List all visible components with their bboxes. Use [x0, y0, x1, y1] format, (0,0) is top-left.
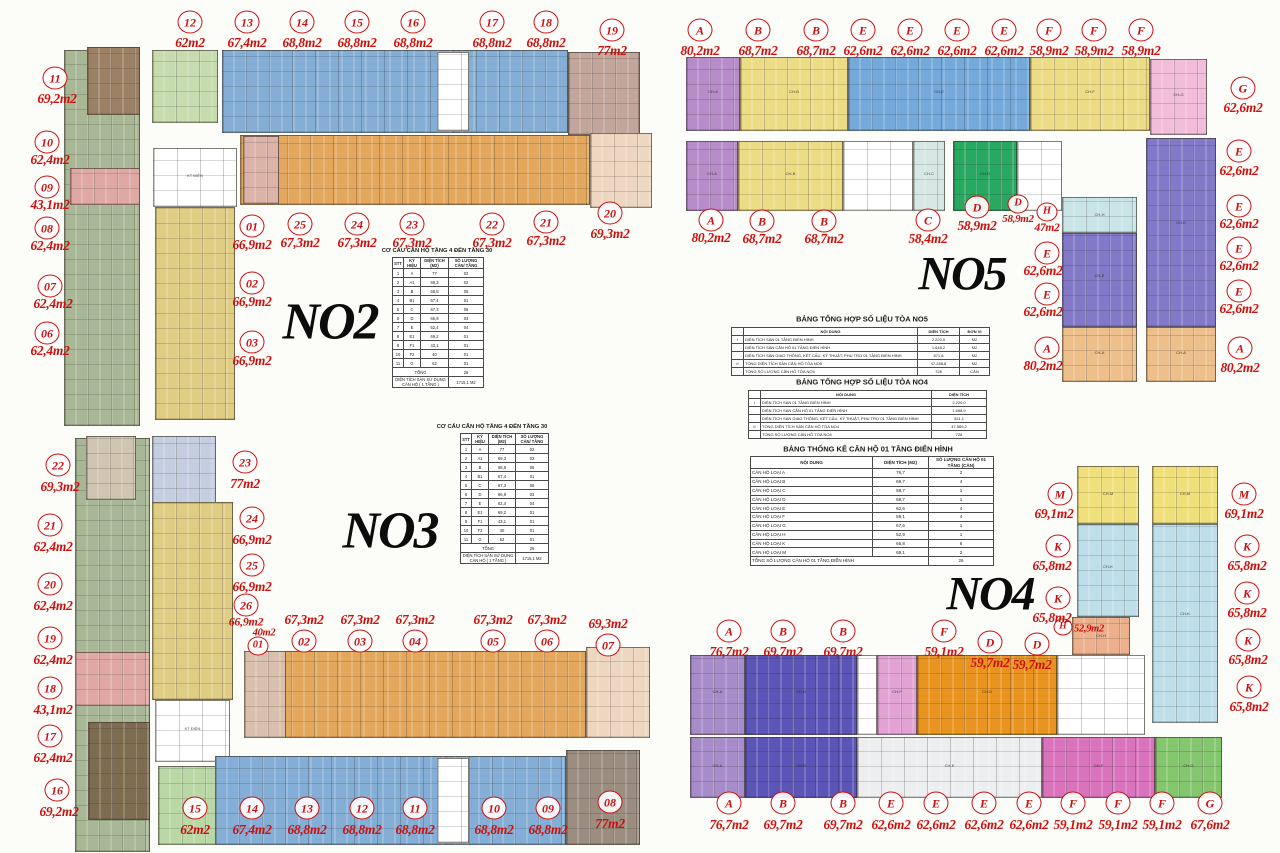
unit-type-tag: CH-K — [1078, 565, 1138, 569]
table-cell: 5 — [461, 481, 472, 490]
unit-area-label: 62,6m2 — [1023, 263, 1062, 279]
table-cell: 02 — [516, 445, 549, 454]
table-cell: 01 — [449, 341, 484, 350]
table-cell: CĂN HỘ LOẠI B — [751, 478, 873, 487]
table-cell: TỔNG SỐ LƯỢNG CĂN HỘ TÒA NO5 — [744, 368, 918, 376]
table-cell: 69,1 — [873, 548, 929, 557]
unit-circle-label: F — [1061, 792, 1086, 815]
table-cell: E — [404, 323, 421, 332]
unit-circle-label: 19 — [38, 627, 63, 650]
table-row: 9F143,101 — [393, 341, 484, 350]
table-cell: SỐ LƯỢNG CĂN HỘ 01 TẦNG (CĂN) — [929, 457, 994, 469]
table-cell: 01 — [516, 526, 549, 535]
plan-block: CH-E — [857, 737, 1042, 798]
table-cell: 02 — [516, 454, 549, 463]
unit-area-label: 62,6m2 — [1023, 304, 1062, 320]
table-cell: M2 — [960, 344, 990, 352]
unit-circle-label: M — [1048, 483, 1073, 506]
table-cell: 01 — [516, 472, 549, 481]
table-cell: 2.220,0 — [918, 336, 960, 344]
unit-area-label: 69,7m2 — [763, 644, 802, 660]
table-cell: 7 — [393, 323, 404, 332]
unit-area-label: 77m2 — [595, 816, 625, 832]
table-cell: 47.569,2 — [932, 423, 987, 431]
table-row: CĂN HỘ LOẠI D59,71 — [751, 495, 994, 504]
table-row: 1A7702 — [461, 445, 549, 454]
table-row: 7E62,404 — [393, 323, 484, 332]
unit-area-label: 68,7m2 — [804, 231, 843, 247]
table-row: 5C67,305 — [461, 481, 549, 490]
unit-circle-label: B — [812, 210, 837, 233]
table-row: 11G6201 — [461, 535, 549, 544]
unit-circle-label: 10 — [482, 797, 507, 820]
table-cell: D — [404, 314, 421, 323]
unit-area-label: 67,3m2 — [337, 235, 376, 251]
table-title-no5-summary: BẢNG TỔNG HỢP SỐ LIỆU TÒA NO5 — [796, 315, 928, 324]
unit-area-label: 69,7m2 — [823, 644, 862, 660]
unit-circle-label: B — [771, 620, 796, 643]
building-title-no2: NO2 — [282, 293, 377, 352]
unit-area-label: 62,6m2 — [984, 43, 1023, 59]
table-cell: E1 — [404, 332, 421, 341]
unit-circle-label: F — [1150, 792, 1175, 815]
unit-type-tag: CH-G — [1156, 764, 1221, 768]
table-cell: TỔNG SỐ LƯỢNG CĂN HỘ TÒA NO4 — [761, 431, 932, 439]
table-cell: M2 — [960, 336, 990, 344]
table-cell: 6 — [461, 490, 472, 499]
table-row: DIỆN TÍCH SÀN GIAO THÔNG, KẾT CẤU, KỸ TH… — [732, 352, 990, 360]
unit-circle-label: D — [978, 631, 1003, 654]
building-no4: CH-MCH-MCH-KCH-KCH-HCH-ACH-BCH-FCH-DCH-A… — [0, 0, 1280, 853]
unit-circle-label: 10 — [35, 131, 60, 154]
unit-area-label: 68,8m2 — [528, 822, 567, 838]
unit-area-label: 68,8m2 — [393, 35, 432, 51]
unit-area-label: 69,3m2 — [590, 226, 629, 242]
table-header-row: STTKÝ HIỆUDIỆN TÍCH (M2)SỐ LƯỢNG CĂN/ TẦ… — [461, 434, 549, 445]
table-cell: 11 — [461, 535, 472, 544]
table-row: 8E169,201 — [461, 508, 549, 517]
table-row: 6D66,903 — [393, 314, 484, 323]
table-row: CĂN HỘ LOẠI M69,12 — [751, 548, 994, 557]
unit-area-label: 80,2m2 — [691, 230, 730, 246]
table-cell: 66,9 — [421, 314, 449, 323]
table-cell: 69,7 — [873, 478, 929, 487]
unit-circle-label: E — [1035, 283, 1060, 306]
unit-area-label: 59,7m2 — [970, 655, 1009, 671]
table-cell: 26 — [516, 544, 549, 553]
unit-circle-label: 12 — [350, 797, 375, 820]
table-cell: 69,2 — [421, 332, 449, 341]
unit-area-label: 58,9m2 — [1029, 43, 1068, 59]
table-cell: 4 — [929, 504, 994, 513]
table-cell: TỔNG DIỆN TÍCH SÀN CĂN HỘ TÒA NO4 — [761, 423, 932, 431]
table-cell: 04 — [516, 499, 549, 508]
table-row: 2A169,302 — [461, 454, 549, 463]
unit-area-label: 68,8m2 — [474, 822, 513, 838]
unit-area-label: 67,3m2 — [395, 612, 434, 628]
table-cell: 59,1 — [873, 513, 929, 522]
table-cell: DIỆN TÍCH SÀN CĂN HỘ 01 TẦNG ĐIỂN HÌNH — [744, 344, 918, 352]
building-title-no3: NO3 — [342, 502, 437, 561]
table-row: TỔNG SỐ LƯỢNG CĂN HỘ TÒA NO4728 — [749, 431, 987, 439]
unit-area-label: 62m2 — [175, 35, 205, 51]
unit-area-label: 68,8m2 — [395, 822, 434, 838]
unit-circle-label: 11 — [403, 797, 428, 820]
unit-circle-label: E — [851, 19, 876, 42]
building-title-no4: NO4 — [946, 567, 1033, 622]
table-row: IITỔNG DIỆN TÍCH SÀN CĂN HỘ TÒA NO547.28… — [732, 360, 990, 368]
unit-circle-label: G — [1231, 77, 1256, 100]
table-cell: D — [472, 490, 489, 499]
table-cell: DIỆN TÍCH SÀN GIAO THÔNG, KẾT CẤU, KỸ TH… — [761, 415, 932, 423]
unit-circle-label: E — [972, 792, 997, 815]
unit-circle-label: 15 — [183, 797, 208, 820]
unit-area-label: 67,4m2 — [232, 822, 271, 838]
unit-area-label: 62,6m2 — [1219, 163, 1258, 179]
table-cell: B1 — [404, 296, 421, 305]
data-table-no3-unit-mix: STTKÝ HIỆUDIỆN TÍCH (M2)SỐ LƯỢNG CĂN/ TẦ… — [460, 433, 548, 564]
unit-circle-label: 11 — [43, 67, 68, 90]
unit-circle-label: 21 — [534, 211, 559, 234]
table-cell: CĂN HỘ LOẠI K — [751, 539, 873, 548]
unit-area-label: 67,4m2 — [227, 35, 266, 51]
table-row: TỔNG SỐ LƯỢNG CĂN HỘ 01 TẦNG ĐIỂN HÌNH26 — [751, 557, 994, 566]
unit-area-label: 62,4m2 — [33, 750, 72, 766]
unit-circle-label: D — [1008, 195, 1029, 214]
table-cell: 40 — [421, 350, 449, 359]
table-cell: M2 — [960, 352, 990, 360]
unit-circle-label: 02 — [292, 630, 317, 653]
table-cell: CĂN HỘ LOẠI A — [751, 469, 873, 478]
unit-circle-label: F — [932, 620, 957, 643]
unit-area-label: 68,8m2 — [337, 35, 376, 51]
table-row: 11G6201 — [393, 359, 484, 368]
unit-circle-label: A — [1035, 337, 1060, 360]
table-row: TỔNG26 — [393, 368, 484, 377]
unit-area-label: 65,8m2 — [1227, 558, 1266, 574]
unit-area-label: 58,9m2 — [1121, 43, 1160, 59]
unit-circle-label: K — [1236, 629, 1261, 652]
unit-area-label: 66,9m2 — [232, 353, 271, 369]
table-cell: 5 — [393, 305, 404, 314]
table-cell: 3 — [393, 287, 404, 296]
unit-circle-label: 15 — [345, 11, 370, 34]
table-cell: 77 — [421, 269, 449, 278]
table-cell: 01 — [449, 359, 484, 368]
table-cell: TỔNG SỐ LƯỢNG CĂN HỘ 01 TẦNG ĐIỂN HÌNH — [751, 557, 929, 566]
plan-block: CH-A — [690, 655, 745, 735]
unit-circle-label: K — [1235, 535, 1260, 558]
plan-block: CH-F — [1042, 737, 1155, 798]
table-row: DIỆN TÍCH SÀN GIAO THÔNG, KẾT CẤU, KỸ TH… — [749, 415, 987, 423]
unit-area-label: 59,1m2 — [1098, 817, 1137, 833]
plan-block: CH-B — [745, 655, 857, 735]
unit-circle-label: 13 — [235, 11, 260, 34]
unit-area-label: 69,7m2 — [763, 817, 802, 833]
unit-type-tag: CH-M — [1153, 492, 1217, 496]
unit-circle-label: 04 — [403, 630, 428, 653]
table-row: IDIỆN TÍCH SÀN 01 TẦNG ĐIỂN HÌNH2.220,0M… — [732, 336, 990, 344]
table-row: 10F24001 — [393, 350, 484, 359]
unit-area-label: 58,9m2 — [957, 218, 996, 234]
table-row: 3B68,805 — [461, 463, 549, 472]
unit-area-label: 43,1m2 — [33, 702, 72, 718]
table-cell: CĂN HỘ LOẠI F — [751, 513, 873, 522]
table-cell: KÝ HIỆU — [404, 258, 421, 269]
table-row: 6D66,903 — [461, 490, 549, 499]
unit-area-label: 58,9m2 — [1002, 213, 1034, 225]
table-row: CĂN HỘ LOẠI F59,14 — [751, 513, 994, 522]
table-cell: 77 — [489, 445, 516, 454]
table-cell: DIỆN TÍCH (M2) — [421, 258, 449, 269]
table-cell: 05 — [449, 287, 484, 296]
table-cell: 01 — [449, 296, 484, 305]
unit-circle-label: 18 — [534, 11, 559, 34]
table-cell: C — [404, 305, 421, 314]
unit-type-tag: CH-K — [1153, 612, 1217, 616]
unit-circle-label: 05 — [481, 630, 506, 653]
unit-area-label: 68,7m2 — [738, 43, 777, 59]
unit-circle-label: 19 — [600, 19, 625, 42]
data-table-no5-summary: NỘI DUNGDIỆN TÍCHĐƠN VỊIDIỆN TÍCH SÀN 01… — [731, 327, 989, 376]
table-cell: 10 — [461, 526, 472, 535]
table-cell: 67,3 — [421, 305, 449, 314]
unit-area-label: 69,7m2 — [823, 817, 862, 833]
unit-circle-label: 25 — [288, 213, 313, 236]
unit-area-label: 62,6m2 — [1223, 100, 1262, 116]
unit-circle-label: B — [831, 792, 856, 815]
unit-area-label: 58,4m2 — [908, 231, 947, 247]
unit-circle-label: 08 — [598, 791, 623, 814]
unit-circle-label: K — [1237, 676, 1262, 699]
unit-circle-label: 12 — [178, 11, 203, 34]
table-cell: F1 — [472, 517, 489, 526]
unit-area-label: 62,6m2 — [1009, 817, 1048, 833]
table-row: 8E169,201 — [393, 332, 484, 341]
unit-circle-label: A — [699, 209, 724, 232]
unit-area-label: 67,3m2 — [340, 612, 379, 628]
unit-area-label: 65,8m2 — [1229, 699, 1268, 715]
table-cell: 2.220,0 — [932, 399, 987, 407]
plan-block: CH-M — [1077, 466, 1139, 524]
unit-area-label: 77m2 — [230, 476, 260, 492]
unit-area-label: 62,6m2 — [937, 43, 976, 59]
unit-circle-label: 24 — [240, 507, 265, 530]
plan-block: CH-F — [877, 655, 917, 735]
table-cell: CĂN — [960, 368, 990, 376]
table-cell: M2 — [960, 360, 990, 368]
unit-area-label: 68,7m2 — [796, 43, 835, 59]
table-row: CĂN HỘ LOẠI K65,86 — [751, 539, 994, 548]
unit-area-label: 59,7m2 — [1012, 657, 1051, 673]
unit-circle-label: 17 — [38, 725, 63, 748]
unit-area-label: 65,8m2 — [1032, 558, 1071, 574]
unit-area-label: 62,4m2 — [30, 238, 69, 254]
table-row: 7E62,404 — [461, 499, 549, 508]
table-cell: A1 — [404, 278, 421, 287]
table-cell: 02 — [449, 269, 484, 278]
unit-area-label: 77m2 — [597, 43, 627, 59]
unit-area-label: 65,8m2 — [1228, 652, 1267, 668]
table-cell: DIỆN TÍCH (M2) — [489, 434, 516, 445]
unit-area-label: 66,9m2 — [232, 532, 271, 548]
unit-area-label: 58,9m2 — [1074, 43, 1113, 59]
table-cell: 9 — [461, 517, 472, 526]
data-table-typical-floor-stats: NỘI DUNGDIỆN TÍCH (M2)SỐ LƯỢNG CĂN HỘ 01… — [750, 456, 993, 566]
unit-circle-label: B — [746, 19, 771, 42]
table-cell: I — [749, 399, 761, 407]
unit-area-label: 65,8m2 — [1032, 610, 1071, 626]
table-cell: 67,6 — [873, 522, 929, 531]
table-cell — [732, 344, 744, 352]
unit-circle-label: 09 — [536, 797, 561, 820]
unit-circle-label: E — [1227, 140, 1252, 163]
table-row: CĂN HỘ LOẠI A76,72 — [751, 469, 994, 478]
table-row: DIỆN TÍCH SÀN CĂN HỘ 01 TẦNG ĐIỂN HÌNH1.… — [732, 344, 990, 352]
unit-circle-label: F — [1082, 19, 1107, 42]
unit-circle-label: 21 — [38, 514, 63, 537]
table-cell: 7 — [461, 499, 472, 508]
table-cell: 69,3 — [421, 278, 449, 287]
table-cell: DIỆN TÍCH SÀN SỬ DỤNG CĂN HỘ ( 1 TẦNG ) — [461, 553, 516, 564]
table-cell: 62,4 — [489, 499, 516, 508]
table-row: IDIỆN TÍCH SÀN 01 TẦNG ĐIỂN HÌNH2.220,0 — [749, 399, 987, 407]
table-cell: 2 — [461, 454, 472, 463]
table-cell: 58,7 — [873, 486, 929, 495]
table-cell: B1 — [472, 472, 489, 481]
table-cell: 1 — [929, 486, 994, 495]
table-cell: 59,7 — [873, 495, 929, 504]
unit-area-label: 68,8m2 — [472, 35, 511, 51]
table-row: DIỆN TÍCH SÀN CĂN HỘ 01 TẦNG ĐIỂN HÌNH1.… — [749, 407, 987, 415]
unit-area-label: 67,6m2 — [1190, 817, 1229, 833]
unit-circle-label: G — [1198, 792, 1223, 815]
unit-circle-label: E — [1017, 792, 1042, 815]
unit-area-label: 62,4m2 — [30, 152, 69, 168]
unit-type-tag: CH-M — [1078, 492, 1138, 496]
unit-circle-label: B — [804, 19, 829, 42]
unit-area-label: 62,6m2 — [916, 817, 955, 833]
table-cell: 62,6 — [873, 504, 929, 513]
unit-circle-label: B — [771, 792, 796, 815]
unit-circle-label: A — [688, 19, 713, 42]
unit-area-label: 68,7m2 — [742, 231, 781, 247]
table-cell: STT — [461, 434, 472, 445]
table-cell: E1 — [472, 508, 489, 517]
plan-block — [1057, 655, 1145, 735]
table-cell: 6 — [929, 539, 994, 548]
unit-circle-label: B — [750, 210, 775, 233]
plan-block: CH-M — [1152, 466, 1218, 524]
table-cell: 26 — [929, 557, 994, 566]
unit-type-tag: CH-F — [878, 690, 916, 694]
unit-area-label: 67,3m2 — [527, 612, 566, 628]
table-cell: 1 — [929, 522, 994, 531]
unit-circle-label: D — [965, 196, 990, 219]
floor-plan-canvas: KT ĐIỆN1262m21367,4m21468,8m21568,8m2166… — [0, 0, 1280, 853]
table-cell: 10 — [393, 350, 404, 359]
table-cell: F2 — [472, 526, 489, 535]
unit-circle-label: E — [945, 19, 970, 42]
table-cell: TỔNG — [461, 544, 516, 553]
unit-circle-label: 22 — [46, 454, 71, 477]
unit-circle-label: 23 — [400, 213, 425, 236]
table-cell: B — [472, 463, 489, 472]
unit-circle-label: H — [1037, 203, 1058, 222]
table-cell: 571,8 — [918, 352, 960, 360]
table-cell — [732, 328, 744, 336]
unit-area-label: 62,4m2 — [33, 652, 72, 668]
unit-type-tag: CH-D — [918, 690, 1056, 694]
table-cell: 43,1 — [489, 517, 516, 526]
table-cell: 65,8 — [873, 539, 929, 548]
table-row: 5C67,305 — [393, 305, 484, 314]
unit-area-label: 43,1m2 — [30, 197, 69, 213]
unit-area-label: 66,9m2 — [232, 579, 271, 595]
table-cell: NỘI DUNG — [744, 328, 918, 336]
table-cell: CĂN HỘ LOẠI D — [751, 495, 873, 504]
table-cell: 67,3 — [489, 481, 516, 490]
unit-circle-label: 16 — [401, 11, 426, 34]
unit-area-label: 62,6m2 — [1219, 301, 1258, 317]
table-cell — [732, 352, 744, 360]
table-cell: A1 — [472, 454, 489, 463]
table-cell: A — [472, 445, 489, 454]
table-cell: 8 — [461, 508, 472, 517]
table-cell: ĐƠN VỊ — [960, 328, 990, 336]
table-cell: 67,4 — [421, 296, 449, 305]
table-cell: STT — [393, 258, 404, 269]
unit-area-label: 62,6m2 — [964, 817, 1003, 833]
table-row: 1A7702 — [393, 269, 484, 278]
unit-circle-label: 09 — [35, 176, 60, 199]
unit-circle-label: E — [1035, 242, 1060, 265]
table-cell: II — [732, 360, 744, 368]
unit-area-label: 47m2 — [1035, 222, 1060, 234]
table-cell: 62,4 — [421, 323, 449, 332]
unit-circle-label: K — [1235, 582, 1260, 605]
table-row: DIỆN TÍCH SÀN SỬ DỤNG CĂN HỘ ( 1 TẦNG )1… — [393, 377, 484, 388]
unit-area-label: 69,2m2 — [37, 91, 76, 107]
table-cell: 68,8 — [421, 287, 449, 296]
unit-circle-label: F — [1106, 792, 1131, 815]
unit-circle-label: 18 — [38, 677, 63, 700]
table-cell: 728 — [918, 368, 960, 376]
table-row: CĂN HỘ LOẠI C58,71 — [751, 486, 994, 495]
table-cell: 69,3 — [489, 454, 516, 463]
table-cell: CĂN HỘ LOẠI M — [751, 548, 873, 557]
unit-circle-label: 14 — [290, 11, 315, 34]
unit-area-label: 67,3m2 — [473, 612, 512, 628]
table-cell: 62 — [489, 535, 516, 544]
table-cell — [749, 431, 761, 439]
unit-circle-label: 07 — [596, 634, 621, 657]
unit-area-label: 59,1m2 — [1053, 817, 1092, 833]
table-cell: C — [472, 481, 489, 490]
plan-block: CH-G — [1155, 737, 1222, 798]
table-row: CĂN HỘ LOẠI G67,61 — [751, 522, 994, 531]
unit-circle-label: B — [831, 620, 856, 643]
table-cell: DIỆN TÍCH — [932, 391, 987, 399]
table-cell — [749, 407, 761, 415]
table-cell: 521,1 — [932, 415, 987, 423]
table-row: DIỆN TÍCH SÀN SỬ DỤNG CĂN HỘ ( 1 TẦNG )1… — [461, 553, 549, 564]
unit-circle-label: 03 — [240, 331, 265, 354]
table-cell: 3 — [461, 463, 472, 472]
table-cell: SỐ LƯỢNG CĂN/ TẦNG — [516, 434, 549, 445]
table-cell: 1.648,2 — [918, 344, 960, 352]
unit-circle-label: 06 — [35, 322, 60, 345]
